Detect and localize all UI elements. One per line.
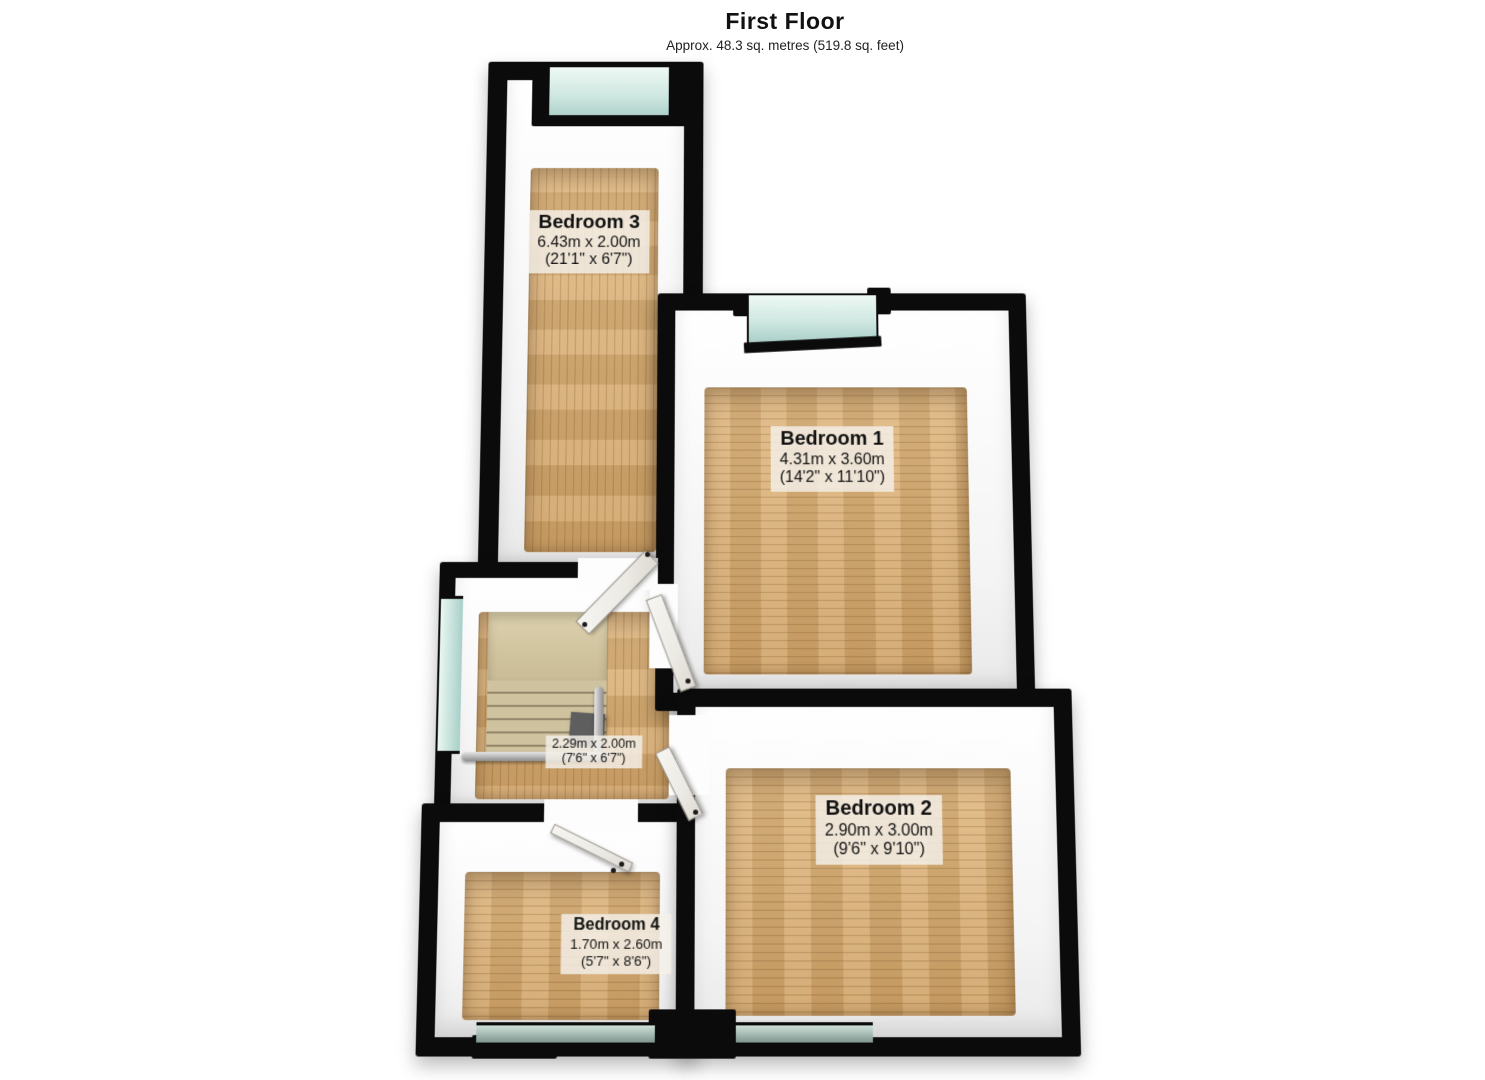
- door-hinge-dot: [645, 552, 650, 557]
- window-bedroom-4: [476, 1022, 655, 1045]
- floorplan-page: First Floor Approx. 48.3 sq. metres (519…: [0, 0, 1485, 1080]
- label-bedroom-4: Bedroom 4 1.70m x 2.60m (5'7" x 8'6"): [561, 914, 672, 974]
- title-block: First Floor Approx. 48.3 sq. metres (519…: [666, 8, 904, 53]
- page-title: First Floor: [666, 8, 904, 35]
- room-bedroom-1-walls: [673, 311, 1017, 693]
- label-bedroom-1: Bedroom 1 4.31m x 3.60m (14'2" x 11'10"): [771, 426, 895, 492]
- room-dimensions-imperial: (14'2" x 11'10"): [780, 470, 886, 489]
- label-bedroom-2: Bedroom 2 2.90m x 3.00m (9'6" x 9'10"): [815, 795, 942, 865]
- window-bedroom-3: [547, 67, 671, 119]
- wall-jog-bottom-center: [648, 1009, 735, 1058]
- door-hinge-dot: [685, 678, 690, 683]
- door-hinge-dot: [619, 862, 624, 867]
- room-dimensions-imperial: (9'6" x 9'10"): [825, 841, 934, 861]
- page-subtitle: Approx. 48.3 sq. metres (519.8 sq. feet): [666, 38, 904, 53]
- room-name: Bedroom 3: [538, 212, 641, 234]
- room-dimensions-metric: 1.70m x 2.60m: [570, 936, 662, 953]
- room-name: Bedroom 2: [825, 797, 933, 821]
- window-sill-bedroom-3: [539, 115, 674, 126]
- door-hinge-dot: [582, 622, 587, 627]
- room-dimensions-metric: 6.43m x 2.00m: [537, 234, 640, 252]
- door-hinge-dot: [611, 868, 616, 873]
- room-dimensions-imperial: (7'6" x 6'7"): [552, 751, 636, 766]
- label-bedroom-3: Bedroom 3 6.43m x 2.00m (21'1" x 6'7"): [528, 210, 649, 274]
- room-dimensions-metric: 4.31m x 3.60m: [780, 451, 885, 469]
- room-dimensions-metric: 2.29m x 2.00m: [552, 737, 636, 752]
- window-bedroom-2: [736, 1022, 873, 1045]
- door-hinge-dot: [693, 810, 698, 815]
- label-landing: 2.29m x 2.00m (7'6" x 6'7"): [545, 736, 642, 769]
- room-dimensions-imperial: (21'1" x 6'7"): [537, 252, 640, 270]
- window-landing: [437, 596, 463, 754]
- room-bedroom-1: [655, 293, 1036, 711]
- room-name: Bedroom 4: [570, 916, 662, 936]
- room-bedroom-2: [676, 689, 1082, 1057]
- room-dimensions-metric: 2.90m x 3.00m: [825, 822, 933, 842]
- room-bedroom-2-walls: [694, 707, 1062, 1037]
- room-name: Bedroom 1: [780, 428, 885, 451]
- room-dimensions-imperial: (5'7" x 8'6"): [570, 953, 662, 970]
- floor-plan: Bedroom 3 6.43m x 2.00m (21'1" x 6'7") B…: [0, 27, 1485, 1080]
